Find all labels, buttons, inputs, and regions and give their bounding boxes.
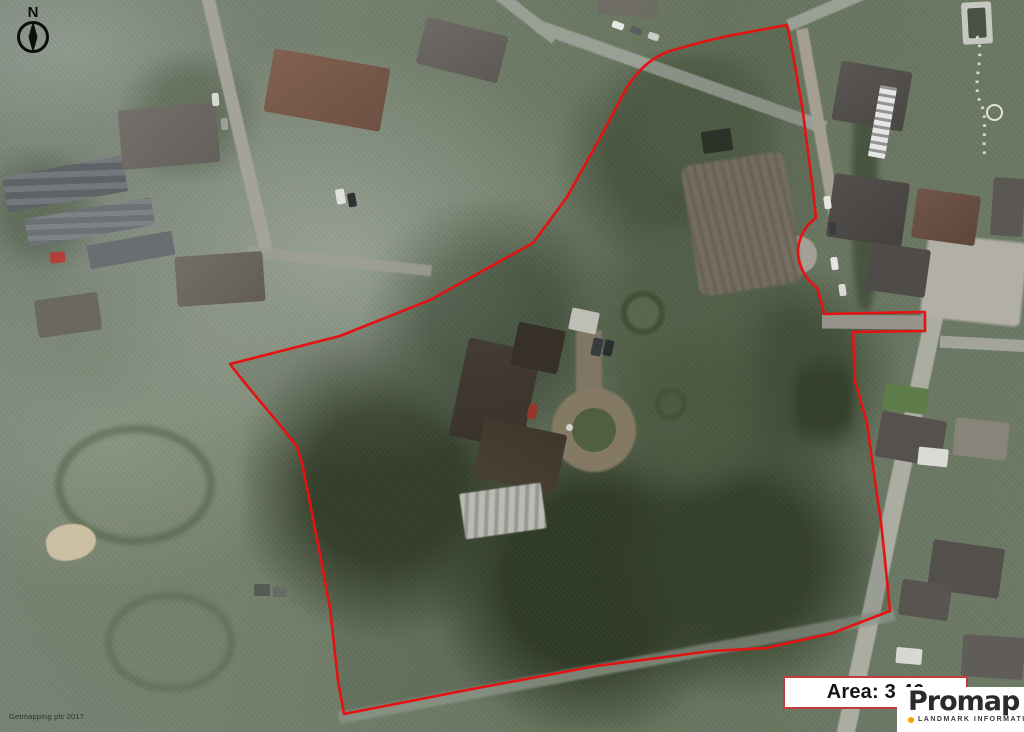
garden-stepping-path xyxy=(977,36,985,158)
compass-icon: N xyxy=(6,2,60,62)
boundary-overlay-svg xyxy=(0,0,1024,732)
compass-north-label: N xyxy=(28,4,39,21)
promap-tagline: LANDMARK INFORMATION xyxy=(918,716,1024,723)
promap-wordmark: Promap xyxy=(908,688,1024,716)
map-attribution: Getmapping plc 2017. xyxy=(9,712,86,721)
compass-needle xyxy=(29,21,38,53)
landmark-dot-icon xyxy=(908,717,914,723)
property-boundary-line xyxy=(230,25,925,714)
aerial-map: N Area: 3.46 Promap LANDMARK INFORMATION… xyxy=(0,0,1024,732)
promap-logo: Promap LANDMARK INFORMATION xyxy=(897,687,1024,732)
